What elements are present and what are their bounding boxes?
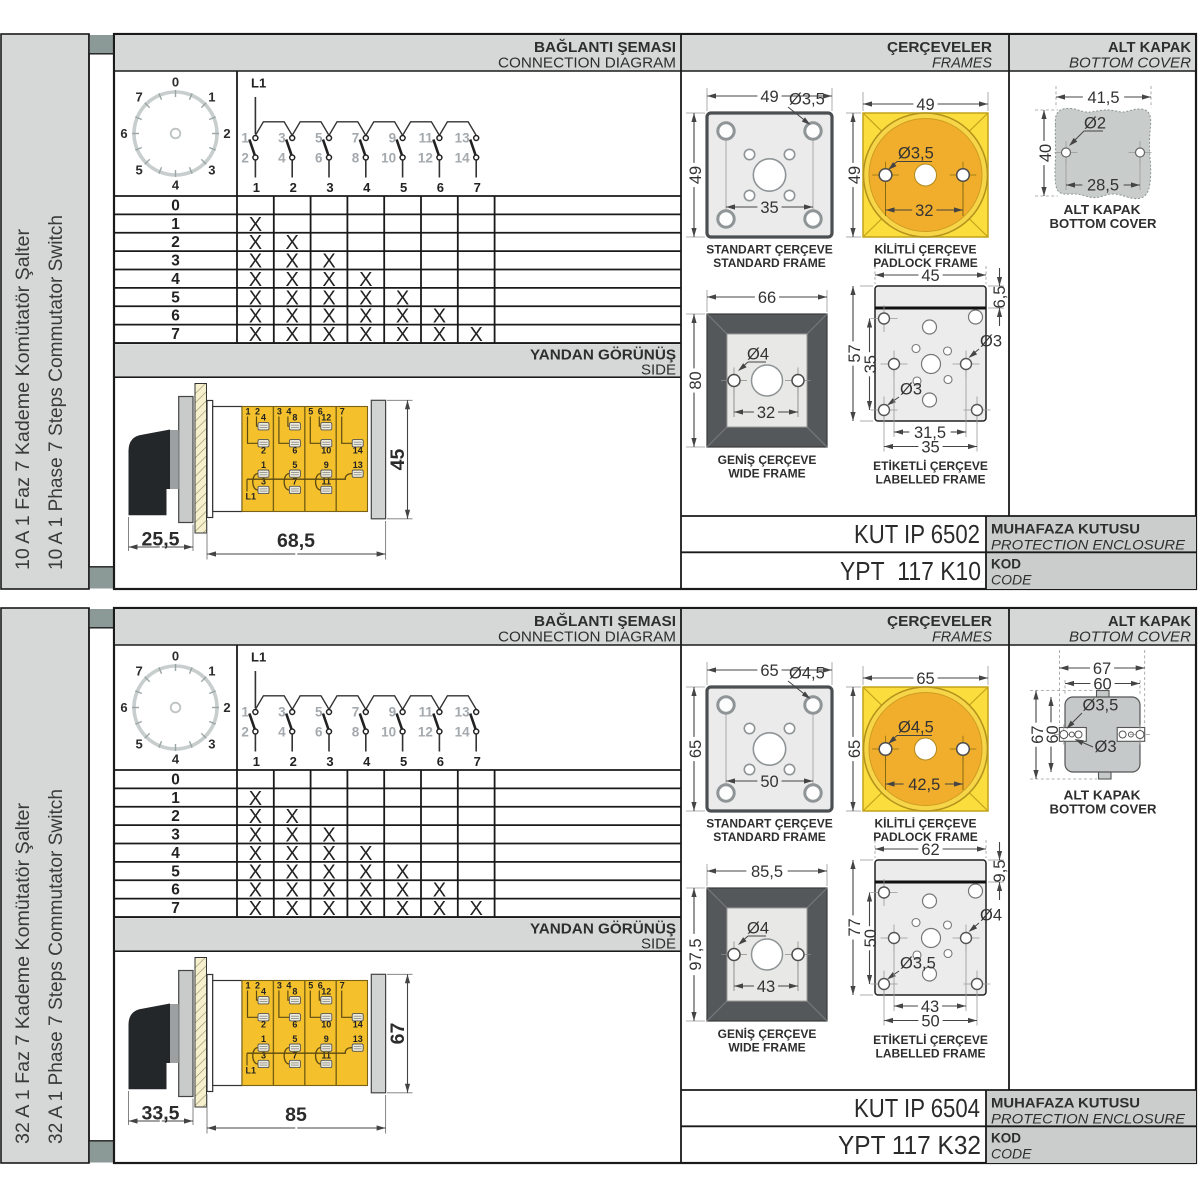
svg-text:BOTTOM COVER: BOTTOM COVER bbox=[1069, 55, 1191, 72]
svg-text:13: 13 bbox=[455, 131, 471, 146]
svg-text:9: 9 bbox=[389, 705, 397, 720]
svg-text:Ø3,5: Ø3,5 bbox=[900, 955, 936, 973]
svg-text:3: 3 bbox=[261, 1051, 266, 1061]
svg-text:32 A 1 Phase 7 Steps Commutato: 32 A 1 Phase 7 Steps Commutator Switch bbox=[46, 789, 67, 1144]
svg-text:ALT KAPAK: ALT KAPAK bbox=[1064, 788, 1142, 803]
svg-text:KOD: KOD bbox=[991, 557, 1021, 572]
svg-text:62: 62 bbox=[921, 841, 939, 859]
svg-text:50: 50 bbox=[921, 1013, 939, 1031]
svg-text:7: 7 bbox=[340, 407, 345, 417]
svg-text:Ø4: Ø4 bbox=[747, 346, 769, 364]
svg-text:3: 3 bbox=[171, 253, 180, 270]
svg-text:CODE: CODE bbox=[991, 572, 1032, 588]
svg-text:CODE: CODE bbox=[991, 1146, 1032, 1162]
svg-text:0: 0 bbox=[172, 75, 179, 90]
svg-text:14: 14 bbox=[353, 1020, 363, 1030]
svg-text:1: 1 bbox=[253, 754, 260, 769]
svg-text:Ø3,5: Ø3,5 bbox=[1083, 697, 1119, 715]
svg-text:14: 14 bbox=[455, 725, 471, 740]
svg-text:9: 9 bbox=[389, 131, 397, 146]
svg-text:12: 12 bbox=[321, 987, 331, 997]
svg-text:Ø3,5: Ø3,5 bbox=[898, 145, 934, 163]
svg-text:0: 0 bbox=[171, 197, 180, 214]
svg-text:80: 80 bbox=[687, 371, 705, 389]
svg-text:WIDE FRAME: WIDE FRAME bbox=[728, 467, 805, 481]
svg-text:PROTECTION ENCLOSURE: PROTECTION ENCLOSURE bbox=[991, 537, 1186, 553]
svg-text:GENİŞ ÇERÇEVE: GENİŞ ÇERÇEVE bbox=[718, 1026, 817, 1041]
svg-text:6: 6 bbox=[171, 882, 180, 899]
svg-text:35: 35 bbox=[760, 199, 778, 217]
svg-text:6: 6 bbox=[292, 446, 297, 456]
svg-text:2: 2 bbox=[171, 234, 180, 251]
svg-text:32: 32 bbox=[915, 202, 933, 220]
svg-text:11: 11 bbox=[322, 477, 332, 487]
svg-text:1: 1 bbox=[171, 216, 180, 233]
svg-text:L1: L1 bbox=[246, 492, 257, 502]
svg-text:5: 5 bbox=[135, 163, 142, 178]
svg-text:10: 10 bbox=[381, 151, 396, 166]
svg-text:7: 7 bbox=[171, 326, 180, 343]
svg-text:32: 32 bbox=[757, 404, 775, 422]
svg-text:6: 6 bbox=[437, 180, 444, 195]
svg-text:85: 85 bbox=[285, 1104, 307, 1126]
svg-text:42,5: 42,5 bbox=[908, 776, 940, 794]
svg-text:12: 12 bbox=[321, 413, 331, 423]
svg-text:MUHAFAZA KUTUSU: MUHAFAZA KUTUSU bbox=[991, 522, 1140, 537]
svg-text:6: 6 bbox=[315, 725, 323, 740]
svg-text:8: 8 bbox=[292, 413, 297, 423]
svg-text:YPT 117 K10: YPT 117 K10 bbox=[840, 556, 981, 586]
svg-text:KİLİTLİ ÇERÇEVE: KİLİTLİ ÇERÇEVE bbox=[874, 816, 976, 831]
svg-text:7: 7 bbox=[352, 705, 360, 720]
svg-text:STANDARD FRAME: STANDARD FRAME bbox=[713, 256, 825, 270]
svg-text:Ø3: Ø3 bbox=[900, 381, 922, 399]
svg-text:6: 6 bbox=[437, 754, 444, 769]
svg-text:5: 5 bbox=[135, 737, 142, 752]
svg-text:60: 60 bbox=[1044, 725, 1062, 743]
svg-text:4: 4 bbox=[286, 981, 291, 991]
svg-text:25,5: 25,5 bbox=[142, 529, 180, 551]
svg-text:L1: L1 bbox=[251, 76, 266, 91]
svg-text:5: 5 bbox=[292, 460, 297, 470]
svg-text:6: 6 bbox=[171, 308, 180, 325]
svg-text:28,5: 28,5 bbox=[1087, 177, 1119, 195]
svg-text:Ø4: Ø4 bbox=[980, 907, 1002, 925]
svg-text:Ø3: Ø3 bbox=[1095, 738, 1117, 756]
svg-text:5: 5 bbox=[171, 863, 180, 880]
svg-text:65: 65 bbox=[916, 670, 934, 688]
svg-text:BAĞLANTI ŞEMASI: BAĞLANTI ŞEMASI bbox=[534, 612, 676, 630]
svg-text:7: 7 bbox=[135, 664, 142, 679]
svg-text:KUT IP 6502: KUT IP 6502 bbox=[854, 519, 980, 549]
svg-text:LABELLED FRAME: LABELLED FRAME bbox=[876, 1047, 986, 1061]
svg-text:8: 8 bbox=[292, 987, 297, 997]
svg-text:85,5: 85,5 bbox=[751, 863, 783, 881]
svg-text:11: 11 bbox=[419, 705, 434, 720]
svg-text:9: 9 bbox=[324, 460, 329, 470]
svg-text:43: 43 bbox=[757, 978, 775, 996]
svg-text:66: 66 bbox=[758, 289, 776, 307]
svg-text:4: 4 bbox=[278, 725, 286, 740]
svg-text:6: 6 bbox=[315, 151, 323, 166]
svg-text:SIDE: SIDE bbox=[641, 936, 676, 953]
svg-text:2: 2 bbox=[171, 808, 180, 825]
svg-text:5: 5 bbox=[400, 180, 407, 195]
svg-text:7: 7 bbox=[352, 131, 360, 146]
svg-text:0: 0 bbox=[172, 649, 179, 664]
svg-text:0: 0 bbox=[171, 771, 180, 788]
svg-text:33,5: 33,5 bbox=[142, 1103, 180, 1125]
svg-text:14: 14 bbox=[353, 446, 363, 456]
svg-text:5: 5 bbox=[315, 705, 323, 720]
svg-text:10: 10 bbox=[381, 725, 396, 740]
svg-text:STANDART ÇERÇEVE: STANDART ÇERÇEVE bbox=[706, 817, 832, 831]
svg-text:STANDARD FRAME: STANDARD FRAME bbox=[713, 830, 825, 844]
svg-text:11: 11 bbox=[322, 1051, 332, 1061]
svg-text:GENİŞ ÇERÇEVE: GENİŞ ÇERÇEVE bbox=[718, 452, 817, 467]
svg-text:65: 65 bbox=[687, 740, 705, 758]
svg-text:2: 2 bbox=[223, 700, 230, 715]
svg-text:6: 6 bbox=[120, 700, 127, 715]
svg-text:10 A 1 Faz 7 Kademe Komütatör: 10 A 1 Faz 7 Kademe Komütatör Şalter bbox=[13, 228, 34, 570]
svg-text:7: 7 bbox=[135, 90, 142, 105]
svg-text:40: 40 bbox=[1037, 144, 1055, 162]
svg-text:6: 6 bbox=[120, 126, 127, 141]
svg-text:L1: L1 bbox=[246, 1066, 257, 1076]
svg-text:PROTECTION ENCLOSURE: PROTECTION ENCLOSURE bbox=[991, 1111, 1186, 1127]
svg-text:KİLİTLİ ÇERÇEVE: KİLİTLİ ÇERÇEVE bbox=[874, 242, 976, 257]
svg-text:5: 5 bbox=[308, 981, 313, 991]
svg-text:1: 1 bbox=[241, 131, 249, 146]
svg-text:3: 3 bbox=[208, 737, 215, 752]
svg-text:6: 6 bbox=[292, 1020, 297, 1030]
svg-text:4: 4 bbox=[363, 180, 371, 195]
svg-text:13: 13 bbox=[455, 705, 471, 720]
svg-text:5: 5 bbox=[171, 289, 180, 306]
svg-text:65: 65 bbox=[760, 662, 778, 680]
svg-text:7: 7 bbox=[292, 1051, 297, 1061]
svg-text:4: 4 bbox=[363, 754, 371, 769]
svg-text:Ø4,5: Ø4,5 bbox=[789, 665, 825, 683]
svg-text:10: 10 bbox=[321, 446, 331, 456]
svg-text:4: 4 bbox=[172, 178, 180, 193]
svg-text:4: 4 bbox=[261, 413, 266, 423]
svg-text:45: 45 bbox=[921, 267, 939, 285]
svg-text:1: 1 bbox=[253, 180, 260, 195]
svg-text:BAĞLANTI ŞEMASI: BAĞLANTI ŞEMASI bbox=[534, 38, 676, 56]
svg-text:9: 9 bbox=[324, 1034, 329, 1044]
svg-text:2: 2 bbox=[241, 725, 249, 740]
svg-text:45: 45 bbox=[387, 449, 409, 471]
svg-text:8: 8 bbox=[352, 725, 360, 740]
svg-text:7: 7 bbox=[474, 754, 481, 769]
svg-text:4: 4 bbox=[171, 271, 180, 288]
svg-text:7: 7 bbox=[340, 981, 345, 991]
svg-text:BOTTOM COVER: BOTTOM COVER bbox=[1050, 216, 1157, 231]
svg-text:FRAMES: FRAMES bbox=[932, 55, 992, 72]
svg-text:13: 13 bbox=[353, 1034, 363, 1044]
svg-text:LABELLED FRAME: LABELLED FRAME bbox=[876, 473, 986, 487]
svg-text:BOTTOM COVER: BOTTOM COVER bbox=[1050, 802, 1157, 817]
svg-text:1: 1 bbox=[245, 981, 250, 991]
svg-text:5: 5 bbox=[400, 754, 407, 769]
svg-text:65: 65 bbox=[846, 740, 864, 758]
svg-text:68,5: 68,5 bbox=[277, 530, 315, 552]
svg-text:1: 1 bbox=[245, 407, 250, 417]
svg-text:1: 1 bbox=[261, 1034, 266, 1044]
svg-text:7: 7 bbox=[474, 180, 481, 195]
svg-text:49: 49 bbox=[916, 96, 934, 114]
svg-text:Ø3,5: Ø3,5 bbox=[789, 91, 825, 109]
svg-text:4: 4 bbox=[171, 845, 180, 862]
svg-text:KOD: KOD bbox=[991, 1131, 1021, 1146]
svg-text:KUT IP 6504: KUT IP 6504 bbox=[854, 1093, 980, 1123]
svg-text:5: 5 bbox=[308, 407, 313, 417]
svg-text:2: 2 bbox=[255, 981, 260, 991]
svg-text:35: 35 bbox=[862, 355, 880, 373]
svg-text:ETİKETLİ ÇERÇEVE: ETİKETLİ ÇERÇEVE bbox=[873, 458, 988, 473]
svg-text:4: 4 bbox=[172, 752, 180, 767]
svg-text:60: 60 bbox=[1093, 676, 1111, 694]
svg-text:8: 8 bbox=[352, 151, 360, 166]
svg-text:1: 1 bbox=[171, 790, 180, 807]
svg-text:2: 2 bbox=[290, 180, 297, 195]
svg-text:67: 67 bbox=[387, 1023, 409, 1045]
svg-text:4: 4 bbox=[286, 407, 291, 417]
svg-text:CONNECTION DIAGRAM: CONNECTION DIAGRAM bbox=[498, 55, 676, 72]
svg-text:2: 2 bbox=[241, 151, 249, 166]
svg-text:3: 3 bbox=[326, 180, 333, 195]
svg-text:Ø2: Ø2 bbox=[1084, 115, 1106, 133]
svg-text:STANDART ÇERÇEVE: STANDART ÇERÇEVE bbox=[706, 243, 832, 257]
svg-text:3: 3 bbox=[208, 163, 215, 178]
svg-text:3: 3 bbox=[326, 754, 333, 769]
svg-text:MUHAFAZA KUTUSU: MUHAFAZA KUTUSU bbox=[991, 1096, 1140, 1111]
svg-text:3: 3 bbox=[277, 981, 282, 991]
svg-text:2: 2 bbox=[290, 754, 297, 769]
svg-text:7: 7 bbox=[171, 900, 180, 917]
svg-text:CONNECTION DIAGRAM: CONNECTION DIAGRAM bbox=[498, 629, 676, 646]
svg-text:13: 13 bbox=[353, 460, 363, 470]
svg-text:9,5: 9,5 bbox=[991, 860, 1009, 883]
svg-text:97,5: 97,5 bbox=[687, 938, 705, 970]
svg-text:35: 35 bbox=[921, 439, 939, 457]
svg-text:1: 1 bbox=[241, 705, 249, 720]
svg-text:Ø4: Ø4 bbox=[747, 920, 769, 938]
svg-text:49: 49 bbox=[687, 166, 705, 184]
svg-text:4: 4 bbox=[261, 987, 266, 997]
svg-text:FRAMES: FRAMES bbox=[932, 629, 992, 646]
svg-text:3: 3 bbox=[278, 705, 286, 720]
svg-text:10 A 1 Phase 7 Steps Commutato: 10 A 1 Phase 7 Steps Commutator Switch bbox=[46, 215, 67, 570]
svg-text:Ø3: Ø3 bbox=[980, 333, 1002, 351]
svg-text:5: 5 bbox=[292, 1034, 297, 1044]
svg-text:1: 1 bbox=[261, 460, 266, 470]
svg-text:12: 12 bbox=[418, 151, 433, 166]
svg-text:50: 50 bbox=[862, 929, 880, 947]
svg-text:14: 14 bbox=[455, 151, 471, 166]
svg-text:41,5: 41,5 bbox=[1087, 89, 1119, 107]
svg-text:YPT 117 K32: YPT 117 K32 bbox=[838, 1130, 981, 1160]
svg-text:12: 12 bbox=[418, 725, 433, 740]
svg-text:2: 2 bbox=[261, 1020, 266, 1030]
svg-text:11: 11 bbox=[419, 131, 434, 146]
svg-text:ALT KAPAK: ALT KAPAK bbox=[1064, 202, 1142, 217]
svg-text:3: 3 bbox=[277, 407, 282, 417]
svg-text:4: 4 bbox=[278, 151, 286, 166]
svg-text:WIDE FRAME: WIDE FRAME bbox=[728, 1041, 805, 1055]
svg-text:3: 3 bbox=[278, 131, 286, 146]
svg-text:2: 2 bbox=[223, 126, 230, 141]
svg-text:1: 1 bbox=[208, 90, 215, 105]
svg-text:2: 2 bbox=[261, 446, 266, 456]
svg-text:SIDE: SIDE bbox=[641, 362, 676, 379]
svg-text:3: 3 bbox=[261, 477, 266, 487]
svg-text:3: 3 bbox=[171, 827, 180, 844]
svg-text:BOTTOM COVER: BOTTOM COVER bbox=[1069, 629, 1191, 646]
svg-text:5: 5 bbox=[315, 131, 323, 146]
svg-text:10: 10 bbox=[321, 1020, 331, 1030]
svg-text:7: 7 bbox=[292, 477, 297, 487]
svg-text:6,5: 6,5 bbox=[991, 286, 1009, 309]
svg-text:2: 2 bbox=[255, 407, 260, 417]
svg-text:L1: L1 bbox=[251, 650, 266, 665]
svg-text:49: 49 bbox=[760, 88, 778, 106]
svg-text:50: 50 bbox=[760, 773, 778, 791]
svg-text:ETİKETLİ ÇERÇEVE: ETİKETLİ ÇERÇEVE bbox=[873, 1032, 988, 1047]
svg-text:1: 1 bbox=[208, 664, 215, 679]
svg-text:49: 49 bbox=[846, 166, 864, 184]
svg-text:32 A 1 Faz 7 Kademe Komütatör: 32 A 1 Faz 7 Kademe Komütatör Şalter bbox=[13, 802, 34, 1144]
svg-text:Ø4,5: Ø4,5 bbox=[898, 719, 934, 737]
